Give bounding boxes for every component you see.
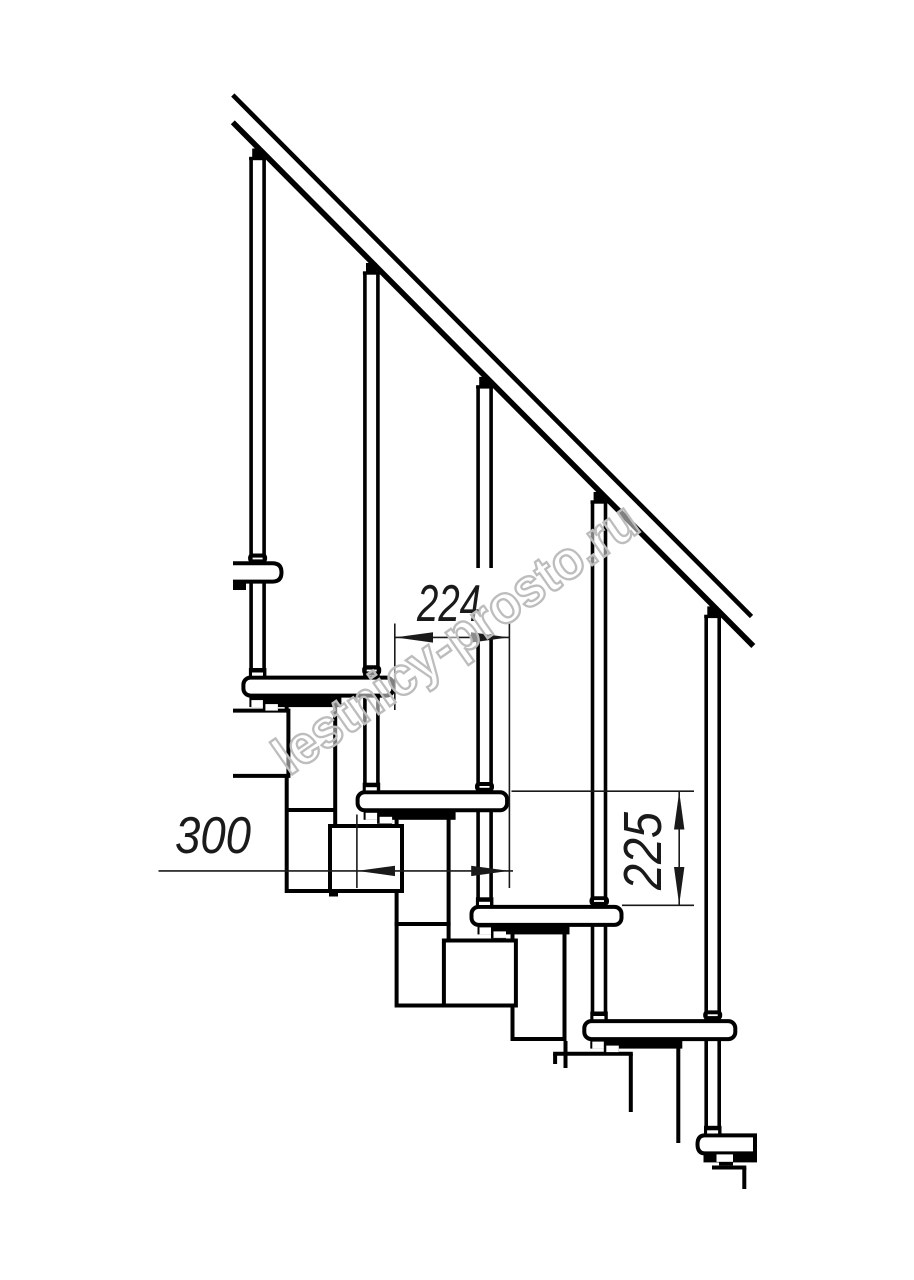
svg-text:225: 225 bbox=[613, 811, 673, 891]
svg-text:300: 300 bbox=[175, 807, 251, 865]
